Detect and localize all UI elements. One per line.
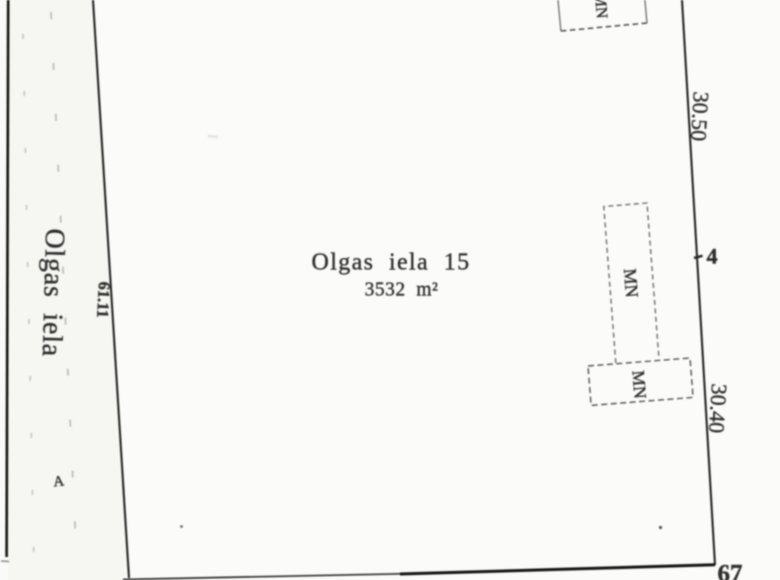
svg-text:67: 67 <box>718 561 743 580</box>
svg-text:MN: MN <box>591 0 610 20</box>
svg-text:30.40: 30.40 <box>704 383 732 434</box>
svg-text:Olgas iela 15: Olgas iela 15 <box>312 250 471 276</box>
svg-text:61.11: 61.11 <box>93 281 114 318</box>
svg-text:30.50: 30.50 <box>686 91 714 142</box>
svg-text:MN: MN <box>620 268 642 298</box>
svg-text:A: A <box>53 473 66 490</box>
svg-text:MN: MN <box>628 370 650 400</box>
svg-text:4: 4 <box>707 244 718 269</box>
svg-text:3532 m²: 3532 m² <box>365 280 439 301</box>
svg-text:Olgas iela: Olgas iela <box>36 228 70 357</box>
